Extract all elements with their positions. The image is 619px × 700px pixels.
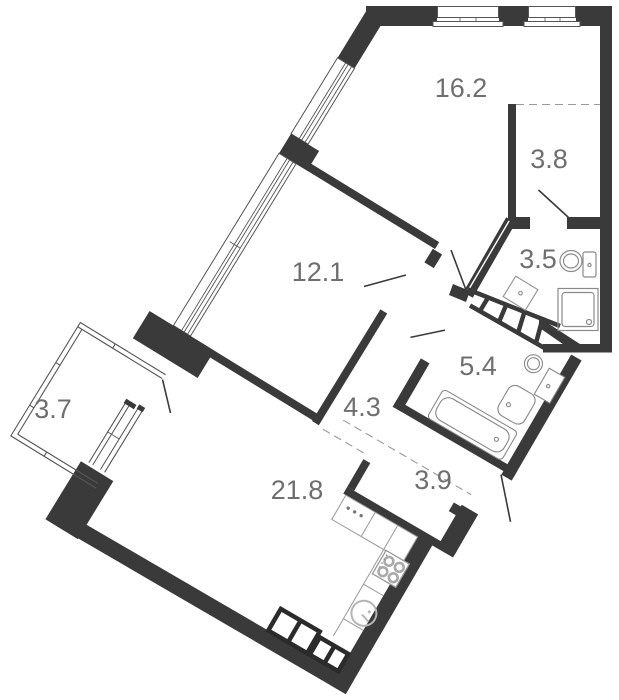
svg-text:4.3: 4.3: [343, 392, 381, 422]
svg-text:16.2: 16.2: [435, 73, 488, 103]
svg-text:3.9: 3.9: [414, 465, 452, 495]
svg-text:3.5: 3.5: [519, 244, 557, 274]
svg-text:21.8: 21.8: [271, 475, 324, 505]
svg-text:3.8: 3.8: [530, 144, 568, 174]
svg-text:3.7: 3.7: [34, 394, 72, 424]
svg-text:5.4: 5.4: [459, 351, 497, 381]
svg-text:12.1: 12.1: [292, 257, 345, 287]
